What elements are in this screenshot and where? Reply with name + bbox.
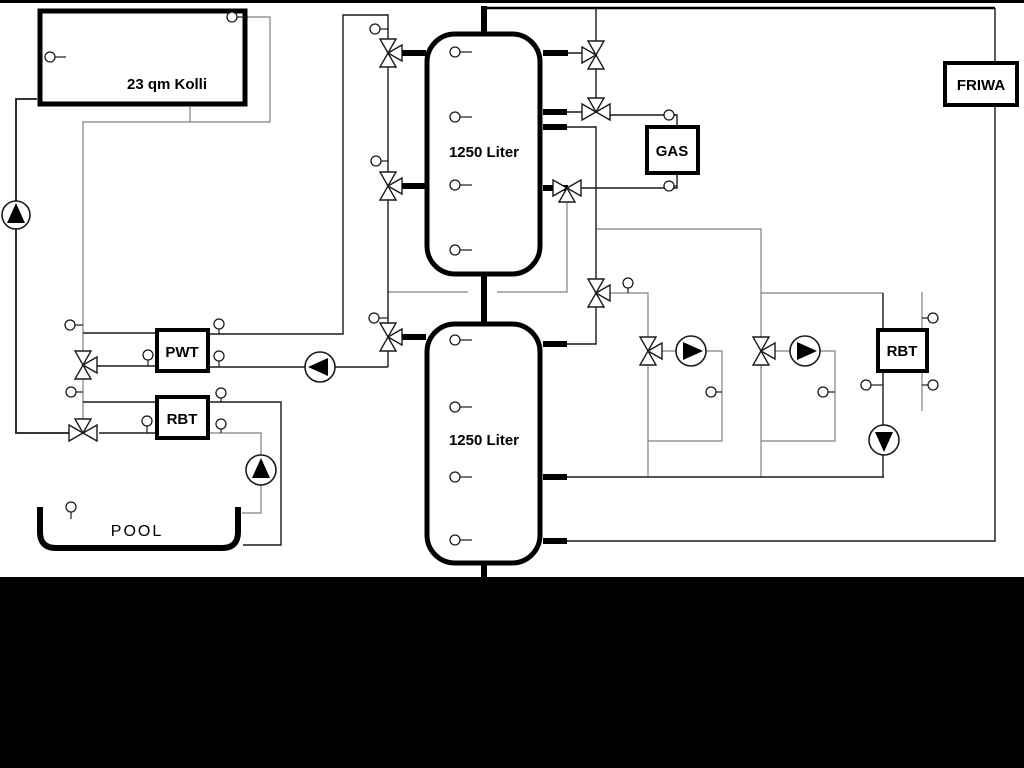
- pipe-mid-valve-column: [566, 127, 596, 344]
- sensor-bulb: [66, 387, 76, 397]
- pump-right: [790, 336, 820, 366]
- three-way-valve: [582, 41, 604, 69]
- lower-tank-right-stubs: [543, 344, 567, 541]
- rbt-left-label: RBT: [167, 411, 198, 428]
- sensor-bulb: [65, 320, 75, 330]
- sensor-bulb: [45, 52, 55, 62]
- swimming-pool: POOL: [40, 507, 238, 548]
- friwa-label: FRIWA: [957, 77, 1005, 94]
- sensor-bulb: [371, 156, 381, 166]
- pump-right: [676, 336, 706, 366]
- pipe-to-circuit-a: [610, 293, 648, 337]
- pipe-circuit-a-loop: [648, 351, 722, 477]
- bottom-black-band: [0, 577, 1024, 768]
- temperature-sensor: [706, 387, 722, 397]
- sensor-bulb: [928, 380, 938, 390]
- rbt-right-label: RBT: [887, 343, 918, 360]
- temperature-sensor: [623, 278, 633, 293]
- sensor-bulb: [928, 313, 938, 323]
- temperature-sensor: [371, 156, 388, 166]
- sensor-bulb: [623, 278, 633, 288]
- rbt-right-unit: RBT: [878, 330, 927, 371]
- sensor-bulb: [450, 180, 460, 190]
- gas-boiler: GAS: [647, 127, 698, 173]
- temperature-sensor: [861, 380, 883, 390]
- temperature-sensor: [65, 320, 83, 330]
- pump-up: [246, 455, 276, 485]
- pipe-friwa-loop: [566, 8, 995, 541]
- sensor-bulb: [143, 350, 153, 360]
- three-way-valve: [640, 337, 662, 365]
- upper-buffer-tank: 1250 Liter: [427, 34, 540, 274]
- pwt-heat-exchanger: PWT: [157, 330, 208, 371]
- pipe-top-valve-column: [566, 8, 596, 112]
- three-way-valve: [380, 39, 402, 67]
- sensor-bulb: [369, 313, 379, 323]
- sensor-bulb: [450, 535, 460, 545]
- temperature-sensor: [143, 350, 153, 366]
- lower-tank-label: 1250 Liter: [449, 432, 519, 449]
- temperature-sensor: [66, 387, 83, 397]
- sensor-bulb: [450, 47, 460, 57]
- hydraulic-schematic-canvas: 23 qm Kolli 1250 Liter 1250 Liter PWT RB…: [0, 0, 1024, 768]
- sensor-bulb: [66, 502, 76, 512]
- top-border-line: [0, 0, 1024, 3]
- sensor-bulb: [706, 387, 716, 397]
- pool-label: POOL: [111, 523, 163, 540]
- gas-label: GAS: [656, 143, 689, 160]
- sensor-bulb: [216, 419, 226, 429]
- three-way-valve: [380, 172, 402, 200]
- temperature-sensor: [664, 110, 677, 120]
- temperature-sensor: [818, 387, 835, 397]
- temperature-sensor: [369, 313, 388, 323]
- temperature-sensor: [922, 380, 938, 390]
- sensor-bulb: [450, 335, 460, 345]
- pump-up: [2, 201, 30, 229]
- temperature-sensor: [216, 419, 226, 433]
- sensor-bulb: [216, 388, 226, 398]
- friwa-station: FRIWA: [945, 63, 1017, 105]
- temperature-sensor: [370, 24, 388, 34]
- three-way-valve: [553, 180, 581, 202]
- lower-buffer-tank: 1250 Liter: [427, 324, 540, 563]
- temperature-sensor: [664, 181, 677, 191]
- three-way-valve: [69, 419, 97, 441]
- rbt-left-unit: RBT: [157, 397, 208, 438]
- three-way-valve: [753, 337, 775, 365]
- pump-left: [305, 352, 335, 382]
- pump-down: [869, 425, 899, 455]
- temperature-sensor: [214, 351, 224, 367]
- pipe-circuit-b-loop: [761, 351, 835, 477]
- temperature-sensor: [216, 388, 226, 402]
- upper-tank-label: 1250 Liter: [449, 144, 519, 161]
- sensor-bulb: [450, 112, 460, 122]
- sensor-bulb: [450, 472, 460, 482]
- collector-label: 23 qm Kolli: [127, 76, 207, 93]
- three-way-valve: [588, 279, 610, 307]
- pipe-collector-return: [16, 99, 69, 433]
- temperature-sensor: [142, 416, 152, 433]
- sensor-bulb: [450, 245, 460, 255]
- sensor-bulb: [214, 319, 224, 329]
- temperature-sensor: [922, 313, 938, 323]
- temperature-sensor: [214, 319, 224, 334]
- sensor-bulb: [818, 387, 828, 397]
- solar-collector: 23 qm Kolli: [40, 11, 245, 104]
- three-way-valve: [380, 323, 402, 351]
- sensor-bulb: [861, 380, 871, 390]
- temperature-sensor: [66, 502, 76, 519]
- three-way-valve: [582, 98, 610, 120]
- sensor-bulb: [370, 24, 380, 34]
- upper-tank-right-stubs: [543, 53, 568, 188]
- sensor-bulb: [664, 110, 674, 120]
- sensor-bulb: [142, 416, 152, 426]
- sensor-bulb: [664, 181, 674, 191]
- pwt-label: PWT: [165, 344, 198, 361]
- three-way-valve: [75, 351, 97, 379]
- sensor-bulb: [450, 402, 460, 412]
- sensor-bulb: [214, 351, 224, 361]
- schematic-page: 23 qm Kolli 1250 Liter 1250 Liter PWT RB…: [0, 0, 1024, 768]
- sensor-bulb: [227, 12, 237, 22]
- tank-left-stubs: [400, 53, 426, 337]
- pipe-branch-upper-right: [596, 229, 761, 337]
